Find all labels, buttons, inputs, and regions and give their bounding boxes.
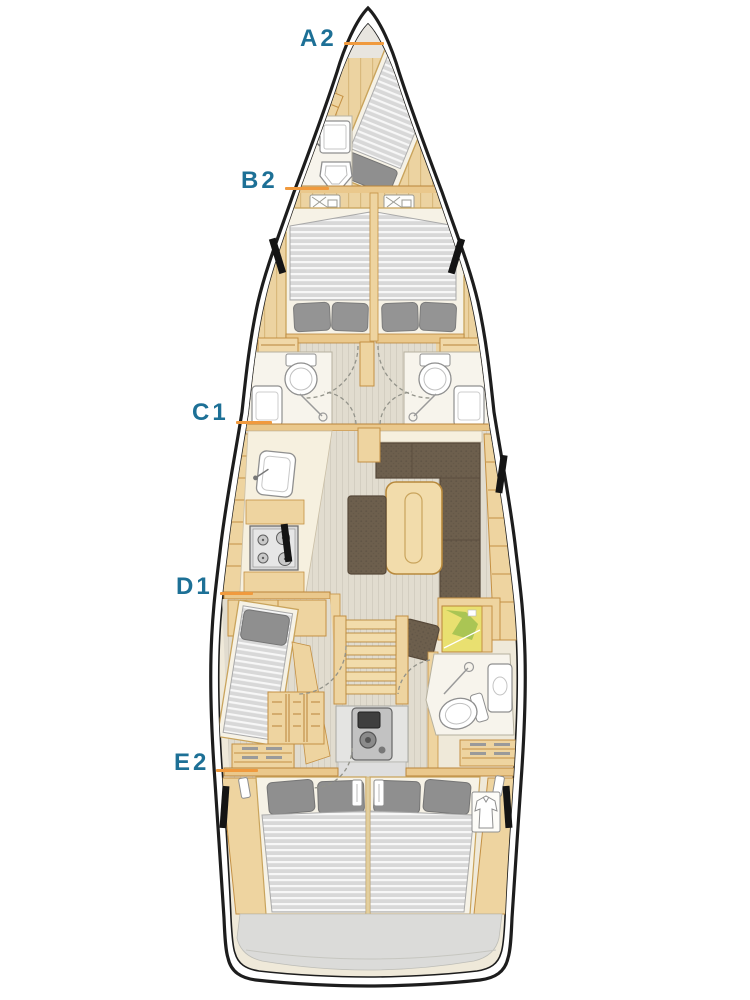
label-b2[interactable]: B2 [241, 169, 329, 193]
label-d1-leader-line [220, 592, 253, 595]
label-c1[interactable]: C1 [192, 401, 272, 425]
aft-cabin-divider [366, 777, 370, 914]
aft-berth-port-mattress [262, 811, 366, 912]
aft-berth-port [256, 777, 366, 914]
label-d1-text[interactable]: D1 [176, 575, 213, 599]
salon-entry-cabinet [358, 428, 380, 462]
pillow [419, 302, 456, 332]
label-e2[interactable]: E2 [174, 751, 258, 775]
label-a2-text[interactable]: A2 [300, 27, 337, 51]
forward-head-starboard [404, 352, 490, 428]
toilet [285, 354, 317, 395]
pillow [267, 779, 316, 815]
sink [454, 386, 484, 426]
forward-berth-starboard-mattress [376, 212, 456, 300]
aft-head [426, 654, 514, 735]
pillow [332, 302, 369, 331]
bulkhead-aft-starboard [406, 768, 520, 776]
cabin-divider [370, 193, 378, 341]
engine [336, 706, 408, 762]
aft-cabins [222, 775, 516, 914]
label-b2-text[interactable]: B2 [241, 169, 278, 193]
label-d1[interactable]: D1 [176, 575, 253, 599]
sink [488, 664, 512, 712]
transom [237, 914, 502, 970]
mid-cabin-shelves [268, 692, 324, 744]
label-b2-leader-line [285, 187, 329, 190]
toilet [419, 354, 451, 395]
label-c1-text[interactable]: C1 [192, 401, 229, 425]
forward-berth-port-mattress [290, 212, 370, 300]
forward-berth-port [286, 208, 374, 343]
aft-berth-starboard [370, 777, 480, 914]
pillow [240, 609, 290, 646]
salon-table [386, 482, 442, 574]
label-a2-leader-line [344, 42, 384, 45]
door-post [360, 342, 374, 386]
pillow [382, 302, 419, 331]
galley-stove [250, 526, 298, 570]
wardrobe-icon [472, 792, 500, 832]
yacht-floor-plan: A2 B2 C1 D1 E2 [0, 0, 750, 1000]
aft-berth-starboard-mattress [370, 811, 474, 912]
salon-bench [348, 496, 386, 574]
floor-plan-svg [0, 0, 750, 1000]
pillow [293, 302, 330, 332]
drawers-starboard [460, 740, 520, 766]
label-e2-leader-line [216, 769, 258, 772]
pillow [423, 779, 472, 815]
label-e2-text[interactable]: E2 [174, 751, 209, 775]
label-c1-leader-line [236, 421, 272, 424]
label-a2[interactable]: A2 [300, 27, 384, 51]
chart-table [442, 606, 492, 652]
